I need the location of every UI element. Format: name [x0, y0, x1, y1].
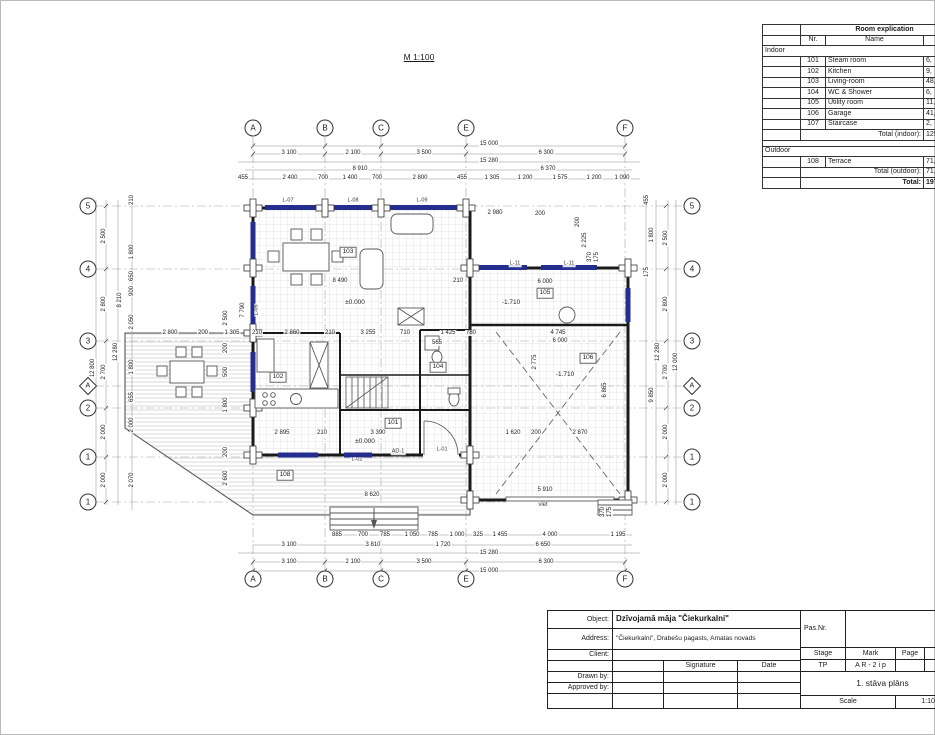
dim-label: 210: [316, 430, 328, 436]
dim-label: 2 800: [411, 175, 428, 181]
dim-label: 650: [129, 270, 135, 282]
dim-label: 2 870: [571, 430, 588, 436]
expl-room-area: 41,: [924, 109, 935, 120]
grid-bubble-label: 1: [86, 498, 90, 507]
dim-label: 455: [456, 175, 468, 181]
dim-label: 2 000: [101, 423, 107, 440]
terrace-table: [170, 361, 204, 383]
page-header: Page: [896, 648, 925, 660]
dim-label: 12 280: [655, 342, 661, 362]
grid-bubble-label: A: [250, 575, 255, 584]
expl-section-header: Indoor: [763, 46, 935, 57]
dim-label: 710: [399, 330, 411, 336]
fireplace: [310, 342, 328, 388]
grid-bubble-label: F: [623, 124, 628, 133]
opening-tag: L-11: [563, 261, 576, 267]
dim-label: 6 300: [537, 150, 554, 156]
dim-label: 200: [223, 446, 229, 458]
grid-bubble-2: 2: [80, 400, 97, 417]
dim-label: 1 425: [439, 330, 456, 336]
grid-bubble-f: F: [617, 571, 634, 588]
expl-room-nr: 102: [801, 67, 826, 78]
dim-label: 1 090: [613, 175, 630, 181]
grid-bubble-label: 1: [690, 498, 694, 507]
expl-room-area: 6,: [924, 56, 935, 67]
grid-bubble-label: 2: [690, 404, 694, 413]
dim-label: 7 790: [240, 301, 246, 318]
drawn-by-label: Drawn by:: [548, 672, 613, 683]
dim-label: 2 895: [273, 430, 290, 436]
expl-section-col: [763, 98, 801, 109]
date-header: Date: [738, 661, 801, 672]
expl-room-area: 9,: [924, 67, 935, 78]
client-value: [613, 650, 801, 661]
room-explication-table: Room explication Nr. Name Area Indoor101…: [762, 24, 935, 189]
expl-total-value: 125,: [924, 130, 935, 141]
bench: [391, 214, 433, 234]
dim-label: 700: [357, 532, 369, 538]
expl-total-label: Total (outdoor):: [801, 167, 924, 178]
dim-label: 2 500: [223, 309, 229, 326]
dim-label: 1 800: [649, 226, 655, 243]
expl-section-col: [763, 67, 801, 78]
dim-label: 455: [644, 194, 650, 206]
dim-label: 2 500: [663, 229, 669, 246]
grid-bubble-label: 2: [86, 404, 90, 413]
dim-label: 200: [575, 216, 581, 228]
opening-tag: L-02: [350, 457, 363, 463]
dim-label: 6 000: [536, 279, 553, 285]
expl-room-area: 71,: [924, 157, 935, 168]
dim-label: 15 000: [479, 141, 499, 147]
floorplan-sheet: { "drawing": { "scale_label": "M 1:100",…: [0, 0, 935, 735]
expl-section-header: Outdoor: [763, 146, 935, 157]
stage-value: TP: [801, 660, 846, 672]
page-value: [896, 660, 925, 672]
dim-label: 3 390: [369, 430, 386, 436]
opening-tag: L-07: [281, 198, 294, 204]
approved-by-label: Approved by:: [548, 683, 613, 694]
grid-bubble-b: B: [317, 120, 334, 137]
dim-label: 6 300: [537, 559, 554, 565]
mark-value: A R - 2 i p: [846, 660, 896, 672]
dim-label: 1 195: [609, 532, 626, 538]
dim-label: 370: [600, 506, 606, 518]
tb-empty: [664, 694, 738, 709]
dim-label: 2 000: [663, 471, 669, 488]
expl-room-nr: 107: [801, 119, 826, 130]
grid-bubble-e: E: [458, 120, 475, 137]
expl-total-label: Total (indoor):: [801, 130, 924, 141]
dim-label: 4 745: [549, 330, 566, 336]
dim-label: 2 000: [663, 423, 669, 440]
expl-section-col: [763, 109, 801, 120]
utility-table: [559, 307, 575, 323]
expl-empty-header: [763, 35, 801, 46]
room-tag: 105: [537, 288, 554, 299]
dim-label: 175: [607, 506, 613, 518]
grid-bubble-2: 2: [684, 400, 701, 417]
client-label: Client:: [548, 650, 613, 661]
expl-room-name: Steam room: [826, 56, 924, 67]
dim-label: 900: [129, 285, 135, 297]
tb-empty: [613, 694, 664, 709]
dim-label: 8 490: [331, 278, 348, 284]
dim-label: 200: [530, 430, 542, 436]
grid-bubble-1: 1: [684, 494, 701, 511]
expl-section-col: [763, 56, 801, 67]
object-label: Object:: [548, 611, 613, 629]
dim-label: 785: [379, 532, 391, 538]
opening-tag: L-11: [509, 261, 522, 267]
expl-room-name: Staircase: [826, 119, 924, 130]
expl-room-nr: 105: [801, 98, 826, 109]
opening-tag: L-09: [415, 198, 428, 204]
dim-label: 2 860: [283, 330, 300, 336]
dim-label: 2 100: [344, 559, 361, 565]
expl-room-area: 6,: [924, 88, 935, 99]
kitchen-sink: [291, 394, 302, 405]
dim-label: 1 305: [483, 175, 500, 181]
grid-bubble-4: 4: [684, 261, 701, 278]
grid-bubble-label: B: [322, 575, 327, 584]
dim-label: 210: [452, 278, 464, 284]
dim-label: 700: [371, 175, 383, 181]
pages-value: [925, 660, 935, 672]
grid-bubble-label: A: [250, 124, 255, 133]
expl-col-nr: Nr.: [801, 35, 826, 46]
tb-empty: [548, 661, 613, 672]
pas-nr-label: Pas.Nr.: [801, 611, 846, 648]
dim-label: 2 000: [101, 471, 107, 488]
dim-label: 785: [427, 532, 439, 538]
dim-label: 2 700: [101, 363, 107, 380]
expl-section-col: [763, 157, 801, 168]
dim-label: 2 500: [101, 227, 107, 244]
pages-header: P: [925, 648, 935, 660]
dim-label: 3 810: [364, 542, 381, 548]
dim-label: 2 070: [129, 471, 135, 488]
grid-bubble-3: 3: [684, 333, 701, 350]
tb-empty: [738, 694, 801, 709]
opening-tag: L-01: [435, 447, 448, 453]
dim-label: 885: [331, 532, 343, 538]
dim-label: 1 455: [491, 532, 508, 538]
expl-total-value: 71,8: [924, 167, 935, 178]
dim-label: 2 775: [532, 353, 538, 370]
dim-label: 6 370: [539, 166, 556, 172]
object-value: Dzīvojamā māja "Čiekurkalni": [613, 611, 801, 629]
grid-bubble-label: A: [690, 382, 695, 389]
dim-label: 2 980: [486, 210, 503, 216]
address-value: "Čiekurkalni", Drabešu pagasts, Amatas n…: [613, 629, 801, 650]
dim-label: 1 050: [403, 532, 420, 538]
dim-label: 4 000: [541, 532, 558, 538]
dim-label: 780: [465, 330, 477, 336]
grid-bubble-label: C: [378, 575, 384, 584]
dim-label: 700: [317, 175, 329, 181]
expl-room-name: Living-room: [826, 77, 924, 88]
tb-empty: [548, 694, 613, 709]
grid-bubble-4: 4: [80, 261, 97, 278]
room-tag: 102: [270, 372, 287, 383]
dim-label: 2 800: [101, 295, 107, 312]
expl-grand-total-value: 197,: [924, 178, 935, 189]
grid-bubble-3: 3: [80, 333, 97, 350]
grid-bubble-label: C: [378, 124, 384, 133]
expl-room-nr: 104: [801, 88, 826, 99]
pas-nr-value: [846, 611, 935, 648]
dim-label: 1 620: [504, 430, 521, 436]
expl-room-nr: 103: [801, 77, 826, 88]
dim-label: 1 800: [223, 396, 229, 413]
dim-label: 200: [197, 330, 209, 336]
expl-section-col: [763, 130, 801, 141]
grid-bubble-label: A: [86, 382, 91, 389]
expl-col-area: Area: [924, 35, 935, 46]
dim-label: 15 280: [479, 550, 499, 556]
signature-header: Signature: [664, 661, 738, 672]
grid-bubble-label: B: [322, 124, 327, 133]
dim-label: 210: [324, 330, 336, 336]
room-tag: 108: [277, 470, 294, 481]
expl-col-name: Name: [826, 35, 924, 46]
expl-corner-cell: [763, 25, 801, 36]
dim-label: 2 700: [663, 363, 669, 380]
expl-section-col: [763, 77, 801, 88]
grid-bubble-b: B: [317, 571, 334, 588]
grid-bubble-1: 1: [80, 449, 97, 466]
dim-label: 6 865: [602, 381, 608, 398]
dim-label: 370: [587, 251, 593, 263]
dim-label: 8 620: [363, 492, 380, 498]
approved-by-date: [738, 683, 801, 694]
dim-label: 2 000: [129, 416, 135, 433]
scale-value: 1:100: [896, 696, 935, 709]
dim-label: 1 800: [129, 358, 135, 375]
dim-label: 3 255: [359, 330, 376, 336]
dim-label: 1 305: [223, 330, 240, 336]
opening-tag: L-08: [346, 198, 359, 204]
dim-label: 3 100: [280, 150, 297, 156]
expl-room-area: 2,: [924, 119, 935, 130]
dim-label: 3 100: [280, 559, 297, 565]
expl-grand-total-label: Total:: [801, 178, 924, 189]
expl-room-nr: 108: [801, 157, 826, 168]
expl-title: Room explication: [801, 25, 935, 36]
dim-label: 3 100: [280, 542, 297, 548]
room-tag: 106: [580, 353, 597, 364]
sauna-stove: [398, 308, 424, 325]
address-label: Address:: [548, 629, 613, 650]
dim-label: 8 210: [117, 291, 123, 308]
dim-label: 12 800: [90, 358, 96, 378]
grid-bubble-a: A: [245, 571, 262, 588]
dim-label: 15 000: [479, 568, 499, 574]
dim-label: 2 800: [663, 295, 669, 312]
level-mark: -1.710: [555, 372, 575, 379]
dim-label: 1 720: [434, 542, 451, 548]
room-tag: 101: [385, 418, 402, 429]
scale-label: Scale: [801, 696, 896, 709]
dim-label: 15 280: [479, 158, 499, 164]
opening-tag: L-06: [254, 303, 260, 316]
grid-bubble-f: F: [617, 120, 634, 137]
dim-label: 3 500: [415, 150, 432, 156]
dim-label: 200: [534, 211, 546, 217]
dim-label: 175: [644, 266, 650, 278]
dim-label: 565: [431, 340, 443, 346]
dim-label: 655: [129, 391, 135, 403]
expl-section-col: [763, 178, 801, 189]
dim-label: 210: [129, 194, 135, 206]
dim-label: 1 200: [585, 175, 602, 181]
dim-label: viet: [537, 502, 548, 508]
grid-bubble-label: 3: [690, 337, 694, 346]
dim-label: 210: [251, 330, 263, 336]
stage-header: Stage: [801, 648, 846, 660]
room-tag: 103: [340, 247, 357, 258]
drawn-by-signature: [664, 672, 738, 683]
grid-bubble-label: 1: [86, 453, 90, 462]
title-block-left: Object: Dzīvojamā māja "Čiekurkalni" Add…: [547, 610, 801, 709]
grid-bubble-label: 1: [690, 453, 694, 462]
grid-bubble-c: C: [373, 120, 390, 137]
dim-label: 8 910: [351, 166, 368, 172]
dim-label: 2 225: [582, 231, 588, 248]
dim-label: 2 050: [129, 313, 135, 330]
drawing-scale-note: M 1:100: [404, 52, 435, 62]
drawn-by-date: [738, 672, 801, 683]
opening-tag: AD-1: [391, 449, 406, 455]
dim-label: 500: [223, 366, 229, 378]
dining-table: [283, 243, 329, 271]
kitchen-cabinet: [257, 339, 274, 372]
dim-label: 6 650: [534, 542, 551, 548]
dim-label: 1 200: [516, 175, 533, 181]
dim-label: 6 000: [551, 338, 568, 344]
expl-room-name: Kitchen: [826, 67, 924, 78]
grid-bubble-5: 5: [80, 198, 97, 215]
grid-bubble-label: F: [623, 575, 628, 584]
expl-room-area: 11,: [924, 98, 935, 109]
dim-label: 2 100: [344, 150, 361, 156]
expl-room-name: WC & Shower: [826, 88, 924, 99]
dim-label: 3 500: [415, 559, 432, 565]
grid-bubble-1: 1: [684, 449, 701, 466]
grid-bubble-label: 4: [690, 265, 694, 274]
dim-label: 12 000: [673, 352, 679, 372]
grid-bubble-label: 4: [86, 265, 90, 274]
dim-label: 5 910: [536, 487, 553, 493]
expl-room-name: Utility room: [826, 98, 924, 109]
approved-by-name: [613, 683, 664, 694]
grid-bubble-label: E: [463, 575, 468, 584]
dim-label: 2 800: [161, 330, 178, 336]
grid-bubble-label: 3: [86, 337, 90, 346]
grid-bubble-e: E: [458, 571, 475, 588]
approved-by-signature: [664, 683, 738, 694]
dim-label: 455: [237, 175, 249, 181]
dim-label: 200: [223, 342, 229, 354]
expl-section-col: [763, 167, 801, 178]
expl-room-area: 48,: [924, 77, 935, 88]
level-mark: ±0.000: [344, 300, 366, 307]
level-mark: -1.710: [501, 300, 521, 307]
grid-bubble-c: C: [373, 571, 390, 588]
grid-bubble-label: E: [463, 124, 468, 133]
dim-label: 12 280: [113, 342, 119, 362]
grid-bubble-label: 5: [690, 202, 694, 211]
level-mark: ±0.000: [354, 439, 376, 446]
grid-bubble-label: 5: [86, 202, 90, 211]
sheet-title: 1. stāva plāns: [801, 672, 935, 696]
dim-label: 2 600: [223, 469, 229, 486]
expl-room-nr: 106: [801, 109, 826, 120]
dim-label: 2 400: [281, 175, 298, 181]
dim-label: 175: [594, 251, 600, 263]
room-tag: 104: [430, 362, 447, 373]
dim-label: 1 575: [551, 175, 568, 181]
grid-bubble-5: 5: [684, 198, 701, 215]
dim-label: 325: [472, 532, 484, 538]
expl-room-name: Terrace: [826, 157, 924, 168]
expl-section-col: [763, 119, 801, 130]
expl-section-col: [763, 88, 801, 99]
grid-bubble-1: 1: [80, 494, 97, 511]
mark-header: Mark: [846, 648, 896, 660]
dim-label: 1 800: [129, 243, 135, 260]
grid-bubble-a: A: [245, 120, 262, 137]
title-block-right: Pas.Nr. Stage Mark Page P TP A R - 2 i p…: [800, 610, 935, 709]
drawn-by-name: [613, 672, 664, 683]
expl-room-nr: 101: [801, 56, 826, 67]
dim-label: 1 000: [448, 532, 465, 538]
dim-label: 9 850: [649, 386, 655, 403]
expl-room-name: Garage: [826, 109, 924, 120]
tb-empty: [613, 661, 664, 672]
sofa: [360, 249, 383, 289]
dim-label: 1 400: [341, 175, 358, 181]
